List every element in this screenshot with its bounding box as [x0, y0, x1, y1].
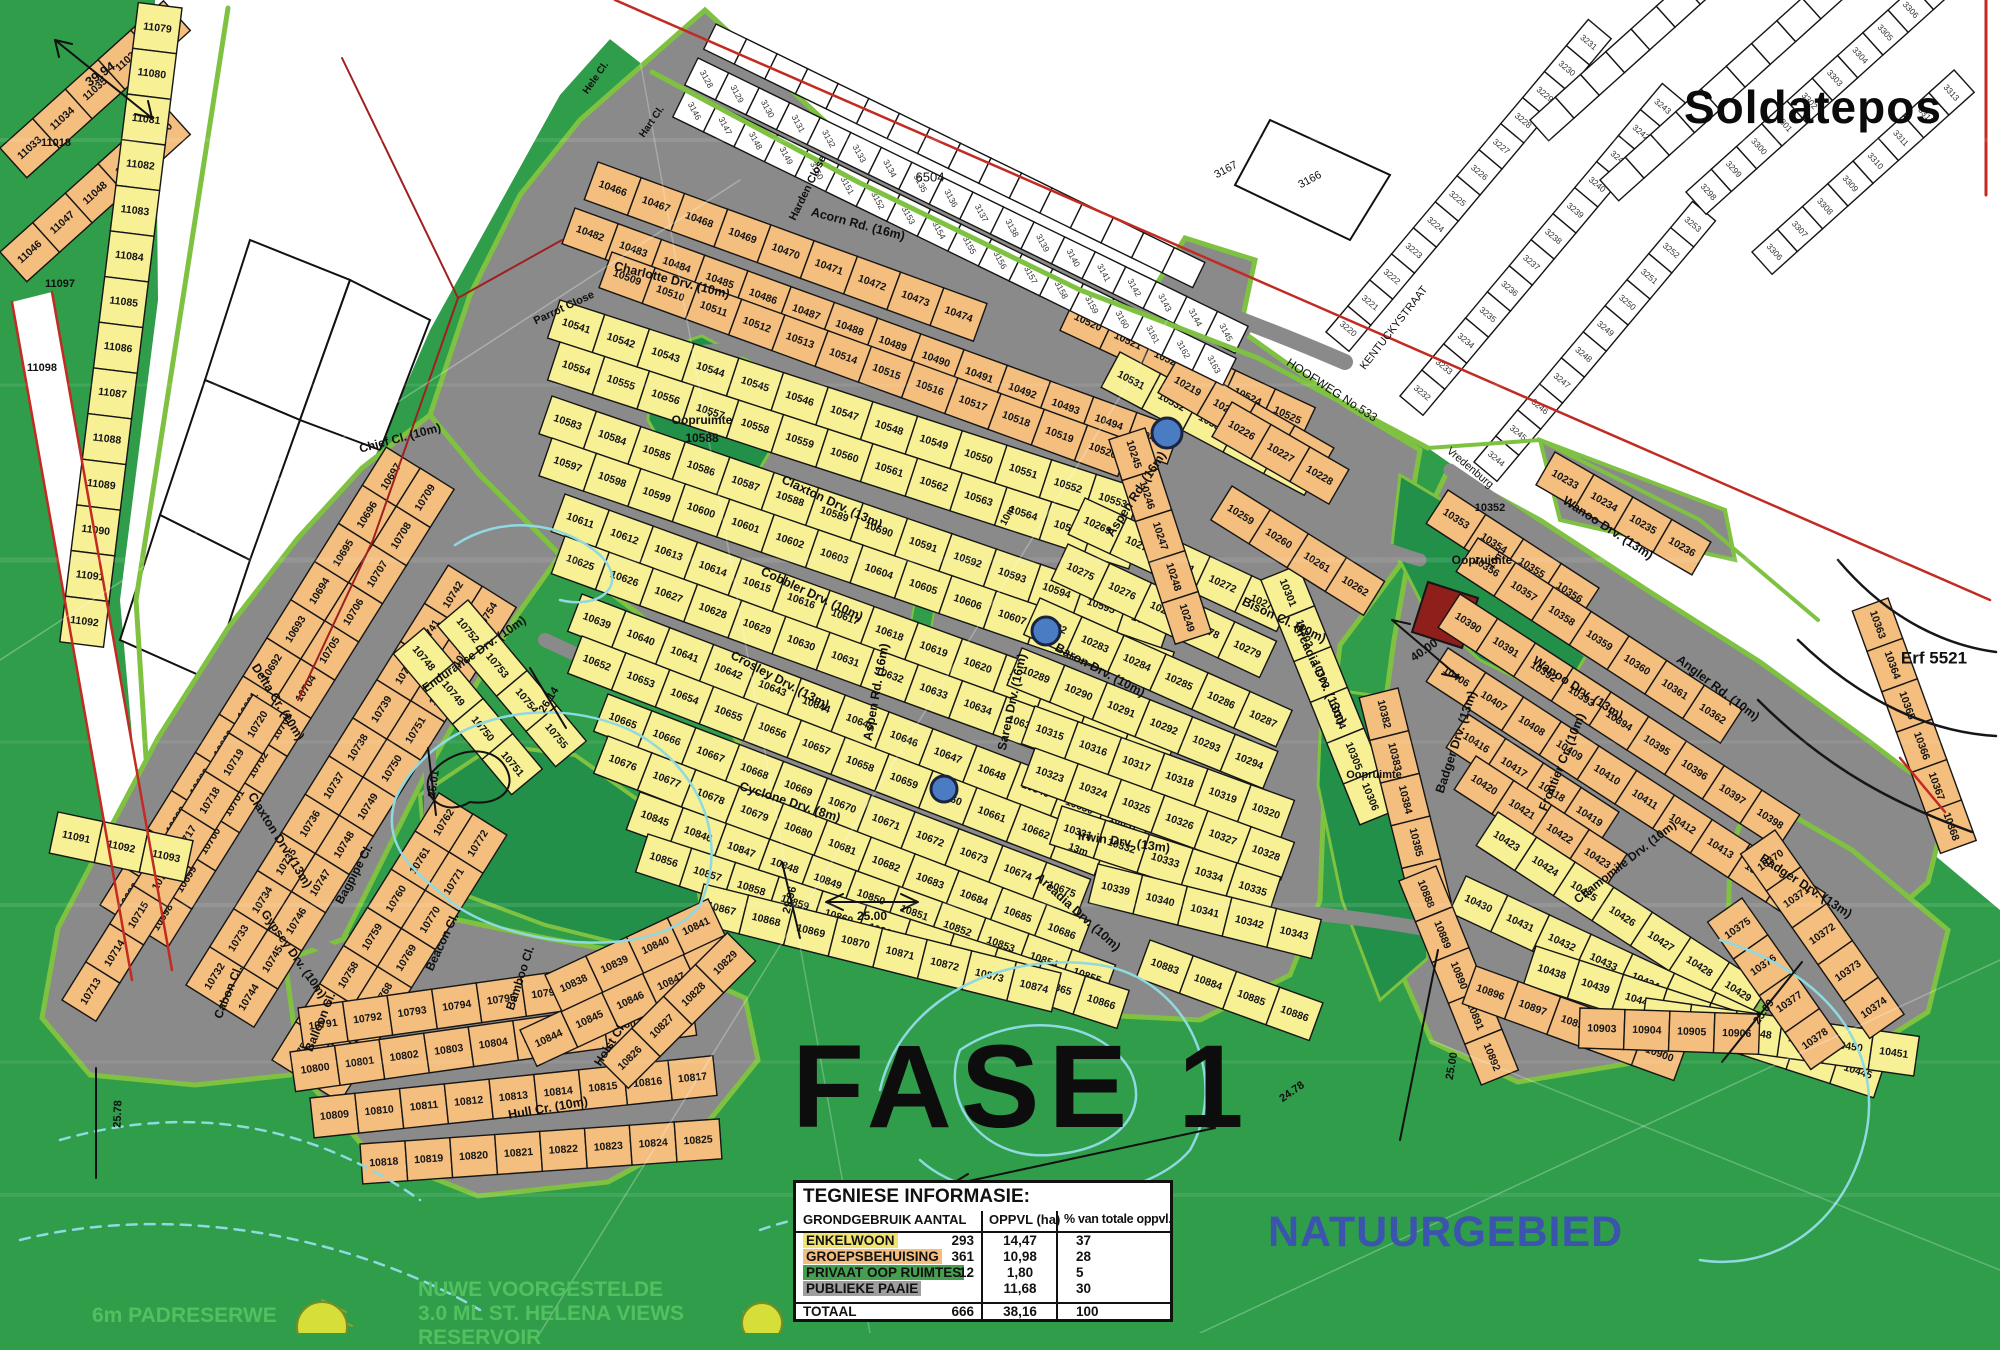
parcel-number: 10904	[1632, 1024, 1662, 1037]
map-stage: 1046610467104681046910470104711047210473…	[0, 0, 2000, 1333]
pct-value: 30	[1076, 1281, 1116, 1296]
dimension-label: 24.78	[1277, 1079, 1306, 1105]
aantal-value: 361	[926, 1249, 974, 1264]
landuse-label: GROEPSBEHUISING	[803, 1249, 942, 1264]
parcel-number: 10825	[683, 1133, 713, 1147]
landuse-label: PUBLIEKE PAAIE	[803, 1281, 921, 1296]
erf-number: 11098	[27, 362, 57, 374]
technical-info-table: TEGNIESE INFORMASIE: GRONDGEBRUIK AANTAL…	[793, 1180, 1173, 1322]
col-header-oppvl: OPPVL (ha)	[989, 1212, 1060, 1227]
col-header-aantal: AANTAL	[914, 1212, 966, 1227]
reservoir-note-line: NUWE VOORGESTELDE	[418, 1278, 684, 1302]
total-pct: 100	[1076, 1304, 1116, 1319]
table-column-rule	[981, 1211, 983, 1319]
area-label: Erf 5521	[1901, 649, 1967, 668]
parcel-number: 10818	[369, 1155, 399, 1169]
table-column-rule	[1056, 1211, 1058, 1319]
township-plan-root: { "page": {"title": "Soldatepos FASE 1 t…	[0, 0, 2000, 1333]
area-label-natuurgebied: NATUURGEBIED	[1268, 1208, 1623, 1257]
erf-number: 11097	[45, 278, 75, 290]
erf-number: 6504	[916, 170, 945, 185]
oppvl-value: 14,47	[989, 1233, 1051, 1248]
dimension-label: 25.78	[112, 1100, 125, 1128]
aantal-value: 293	[926, 1233, 974, 1248]
table-title: TEGNIESE INFORMASIE:	[796, 1183, 1170, 1209]
col-header-grondgebruik: GRONDGEBRUIK	[803, 1212, 911, 1227]
parcel-number: 10822	[548, 1143, 578, 1157]
parcel-number: 10824	[638, 1136, 668, 1150]
area-label-soldatepos: Soldatepos	[1684, 80, 1942, 134]
phase-title: FASE 1	[792, 1028, 1253, 1146]
reservoir-note-line: RESERVOIR	[418, 1326, 684, 1350]
parcel-number: 10903	[1587, 1022, 1617, 1035]
total-aantal: 666	[926, 1304, 974, 1319]
area-label: 10588	[685, 431, 719, 445]
oppvl-value: 10,98	[989, 1249, 1051, 1264]
dimension-label: 25.00	[1444, 1051, 1461, 1080]
parcel-number: 10821	[504, 1146, 534, 1160]
table-total-row: TOTAAL 666 38,16 100	[796, 1302, 1170, 1331]
oppvl-value: 11,68	[989, 1281, 1051, 1296]
pct-value: 28	[1076, 1249, 1116, 1264]
table-row: PRIVAAT OOP RUIMTES 12 1,80 5	[796, 1265, 1170, 1281]
roundabout-icon	[1032, 617, 1060, 645]
contour-line	[20, 1224, 480, 1310]
table-row: PUBLIEKE PAAIE 11,68 30	[796, 1281, 1170, 1297]
area-label: Oopruimte	[672, 413, 733, 427]
roundabout-icon	[1152, 418, 1182, 448]
area-label: Oopruimte	[1452, 553, 1513, 567]
col-header-pct: % van totale oppvl.	[1064, 1212, 1172, 1226]
area-label: Oopruimte	[1346, 769, 1402, 781]
table-row: ENKELWOON 293 14,47 37	[796, 1233, 1170, 1249]
reservoir-note-line: 3.0 ML ST. HELENA VIEWS	[418, 1302, 684, 1326]
reservoir-symbol	[742, 1303, 782, 1333]
table-row: GROEPSBEHUISING 361 10,98 28	[796, 1249, 1170, 1265]
aantal-value: 12	[926, 1265, 974, 1280]
landuse-label: ENKELWOON	[803, 1233, 898, 1248]
parcel-number: 10823	[593, 1140, 623, 1154]
area-label: 10352	[1475, 502, 1506, 514]
total-label: TOTAAL	[803, 1304, 857, 1319]
erf-number: 11018	[41, 137, 71, 149]
reservoir-symbol	[297, 1302, 347, 1333]
padreserwe-label: 6m PADRESERWE	[92, 1304, 277, 1328]
dimension-label: 25.00	[857, 909, 887, 923]
roundabout-icon	[931, 776, 957, 802]
parcel-number: 10819	[414, 1152, 444, 1166]
pct-value: 5	[1076, 1265, 1116, 1280]
oppvl-value: 1,80	[989, 1265, 1051, 1280]
parcel-number: 10905	[1677, 1025, 1707, 1038]
reservoir-note: NUWE VOORGESTELDE 3.0 ML ST. HELENA VIEW…	[418, 1278, 684, 1350]
total-oppvl: 38,16	[989, 1304, 1051, 1319]
table-header-row: GRONDGEBRUIK AANTAL OPPVL (ha) % van tot…	[796, 1209, 1170, 1233]
parcel-number: 10820	[459, 1149, 489, 1163]
pct-value: 37	[1076, 1233, 1116, 1248]
